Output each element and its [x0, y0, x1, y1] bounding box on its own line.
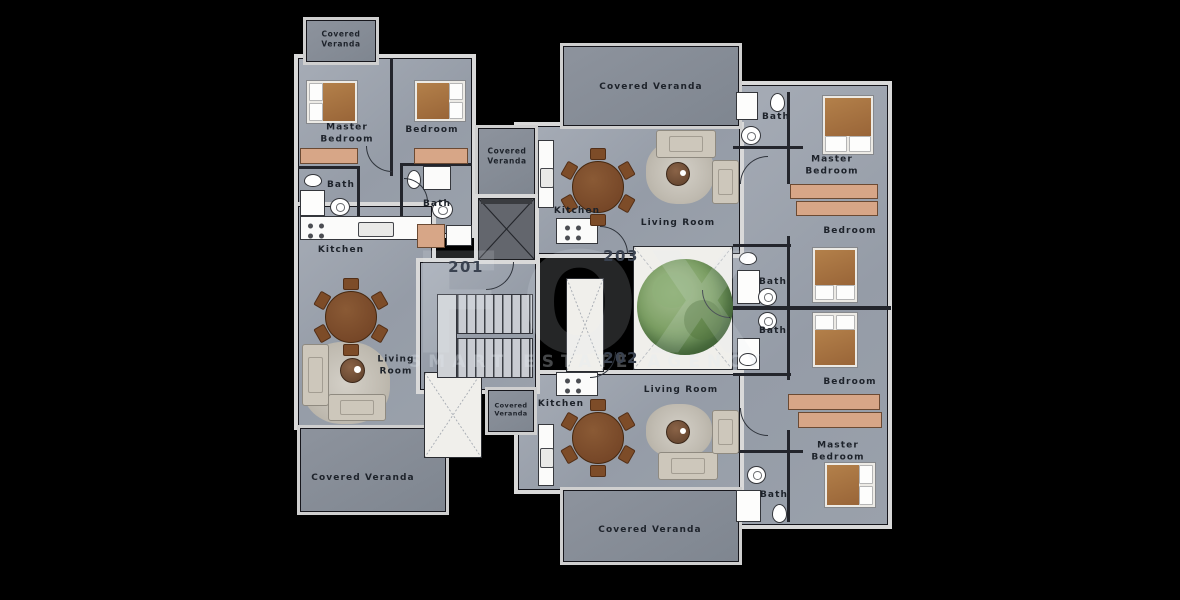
- room-label: Master Bedroom: [806, 440, 870, 463]
- room-label: Covered Veranda: [598, 525, 701, 537]
- coffee-table-icon: [666, 420, 690, 444]
- room-label: Bath: [759, 326, 787, 338]
- room-label: Kitchen: [538, 399, 584, 411]
- shower-icon: [300, 190, 325, 216]
- sofa-icon: [712, 410, 739, 454]
- room-label: Master Bedroom: [316, 122, 378, 145]
- room-label: Living Room: [641, 218, 716, 230]
- kitchen-sink-icon: [540, 448, 554, 468]
- vanity-counter: [423, 166, 451, 190]
- wall: [357, 166, 360, 216]
- toilet-icon: [770, 93, 785, 112]
- room-label: Living Room: [644, 385, 719, 397]
- sofa-icon: [328, 394, 386, 421]
- sofa-icon: [658, 452, 718, 480]
- room-label: Living Room: [374, 354, 418, 377]
- wall: [733, 146, 803, 149]
- wall: [733, 450, 803, 453]
- wardrobe-icon: [300, 148, 358, 164]
- bed-icon: [306, 80, 358, 124]
- room-label: Master Bedroom: [801, 154, 863, 177]
- stove-icon: [303, 219, 327, 239]
- room-label: Covered Veranda: [491, 402, 531, 419]
- room-label: Bedroom: [405, 125, 458, 137]
- room-label: Covered Veranda: [313, 29, 369, 49]
- floor-plan: FOX SMART ESTATE AGENCY Covered Veranda …: [0, 0, 1180, 600]
- wardrobe-icon: [790, 184, 878, 199]
- room-label: Bath: [759, 277, 787, 289]
- room-label: Bath: [423, 199, 451, 211]
- unit-number-201: 201: [448, 258, 484, 276]
- bed-icon: [414, 80, 466, 122]
- wall: [787, 92, 790, 184]
- room-label: Covered Veranda: [311, 473, 414, 485]
- sofa-icon: [302, 344, 329, 406]
- wardrobe-icon: [788, 394, 880, 410]
- room-label: Bedroom: [823, 226, 876, 238]
- room-label: Bath: [762, 112, 790, 124]
- room-label: Covered Veranda: [483, 146, 531, 166]
- sink-icon: [747, 466, 766, 484]
- wardrobe-icon: [414, 148, 468, 164]
- wall: [298, 166, 360, 169]
- watermark-text: SMART ESTATE AGENCY: [409, 352, 767, 372]
- room-label: Covered Veranda: [599, 82, 702, 94]
- room-label: Bedroom: [823, 377, 876, 389]
- toilet-icon: [772, 504, 787, 523]
- wardrobe-icon: [798, 412, 882, 428]
- room-label: Kitchen: [318, 245, 364, 257]
- coffee-table-icon: [340, 358, 365, 383]
- sink-icon: [330, 198, 350, 216]
- unit-number-203: 203: [603, 247, 639, 265]
- room-label: Kitchen: [554, 206, 600, 218]
- shower-icon: [736, 92, 758, 120]
- toilet-icon: [304, 174, 322, 187]
- bed-icon: [822, 95, 874, 155]
- bed-icon: [824, 462, 876, 508]
- shower-icon: [736, 490, 761, 522]
- unit-number-202: 202: [603, 349, 639, 367]
- kitchen-sink-icon: [358, 222, 394, 237]
- bed-icon: [812, 312, 858, 368]
- wall: [787, 430, 790, 522]
- sofa-icon: [712, 160, 739, 204]
- coffee-table-icon: [666, 162, 690, 186]
- wall: [787, 310, 790, 380]
- sink-icon: [741, 126, 761, 145]
- wardrobe-icon: [796, 201, 878, 216]
- sofa-icon: [656, 130, 716, 158]
- room-label: Bath: [760, 490, 788, 502]
- kitchen-sink-icon: [540, 168, 554, 188]
- bed-icon: [812, 247, 858, 303]
- room-label: Bath: [327, 180, 355, 192]
